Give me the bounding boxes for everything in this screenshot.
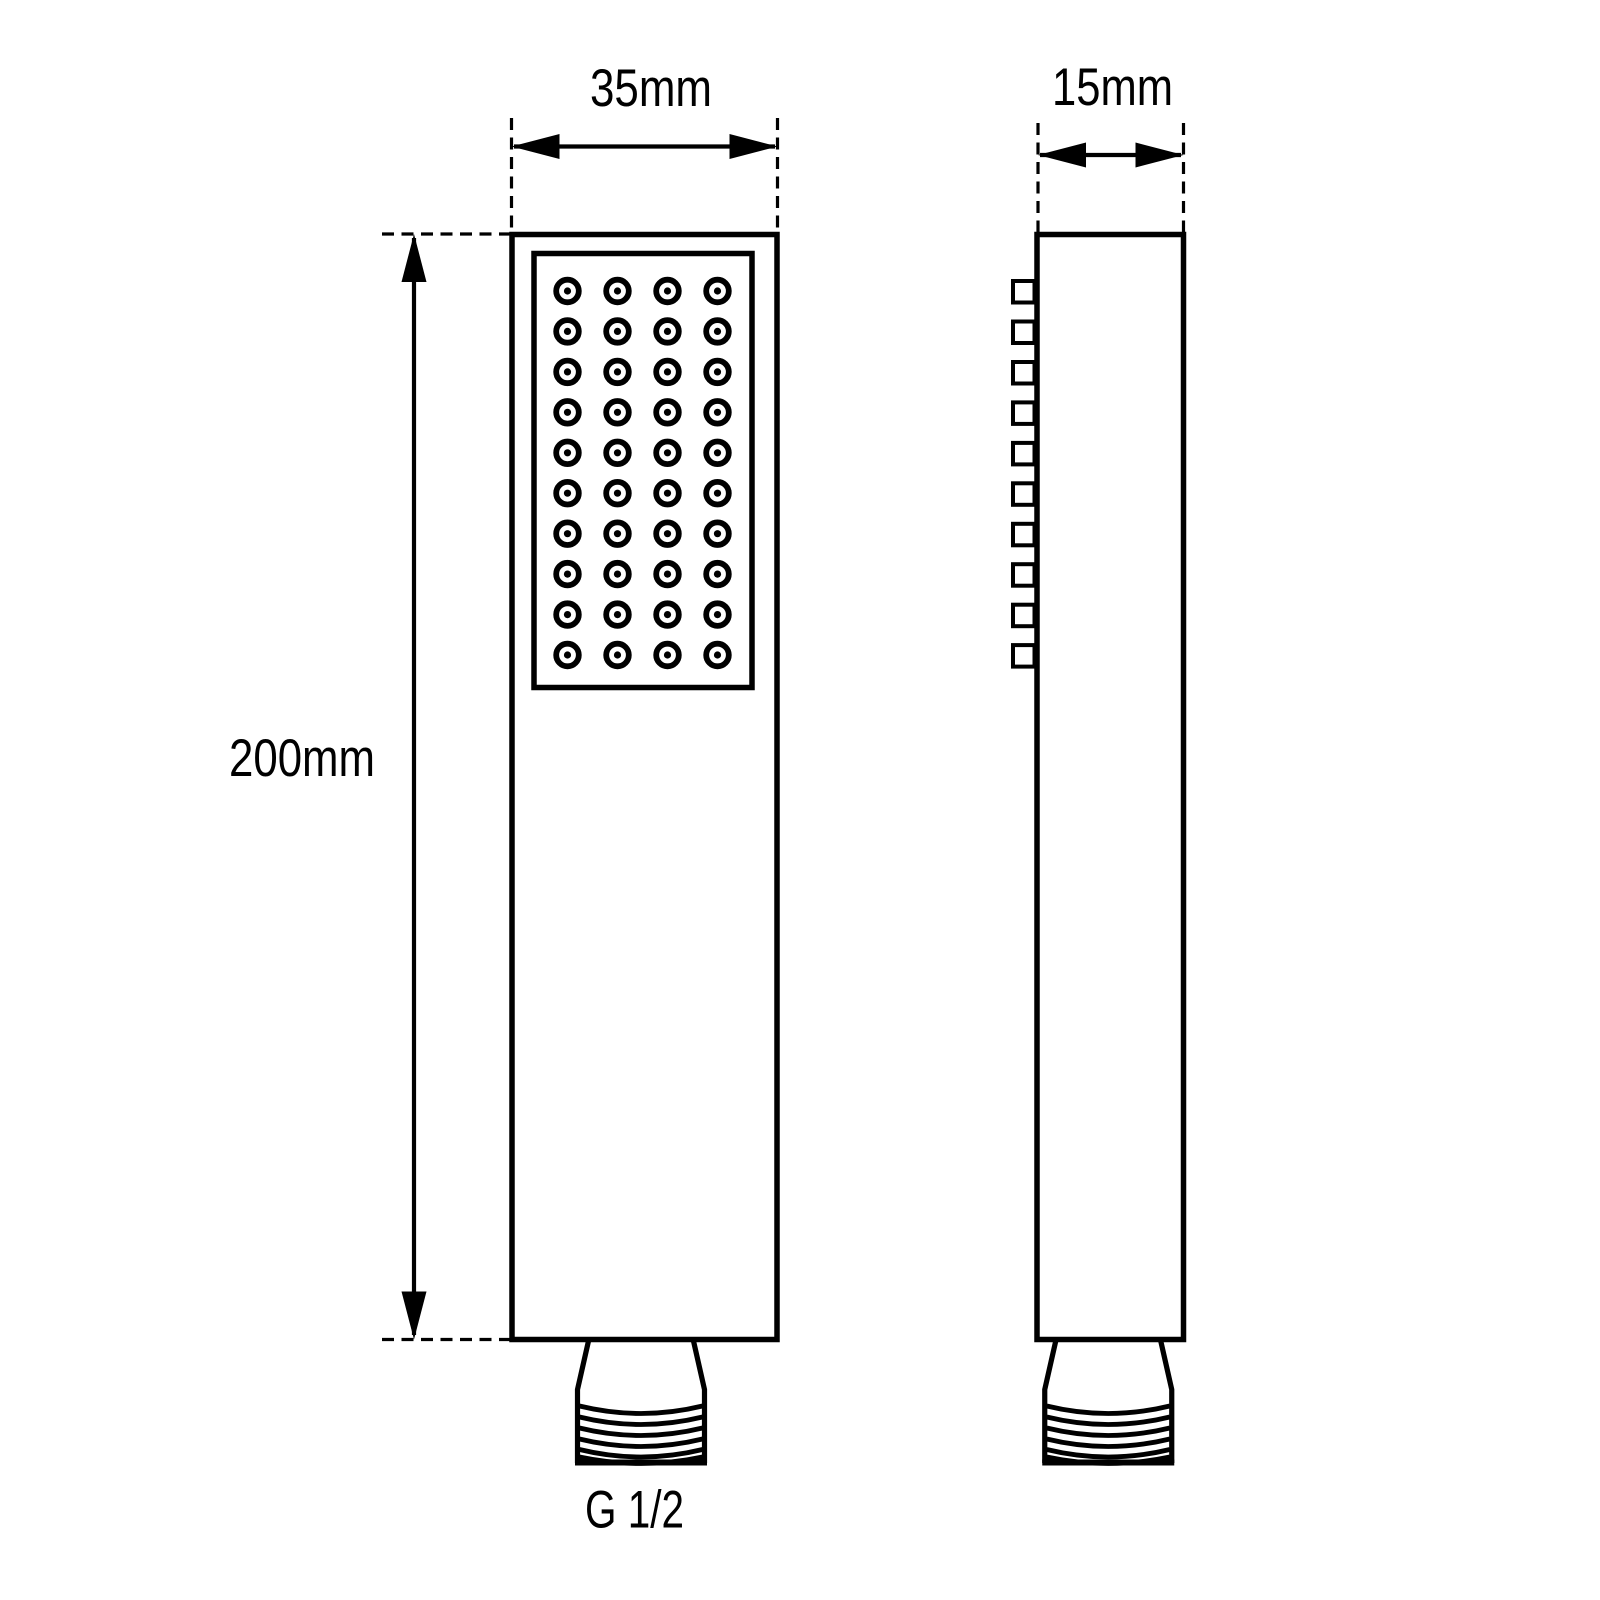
svg-text:G 1/2: G 1/2 <box>585 1481 684 1540</box>
svg-text:35mm: 35mm <box>590 59 712 118</box>
svg-text:200mm: 200mm <box>229 729 375 788</box>
svg-text:15mm: 15mm <box>1052 58 1173 117</box>
